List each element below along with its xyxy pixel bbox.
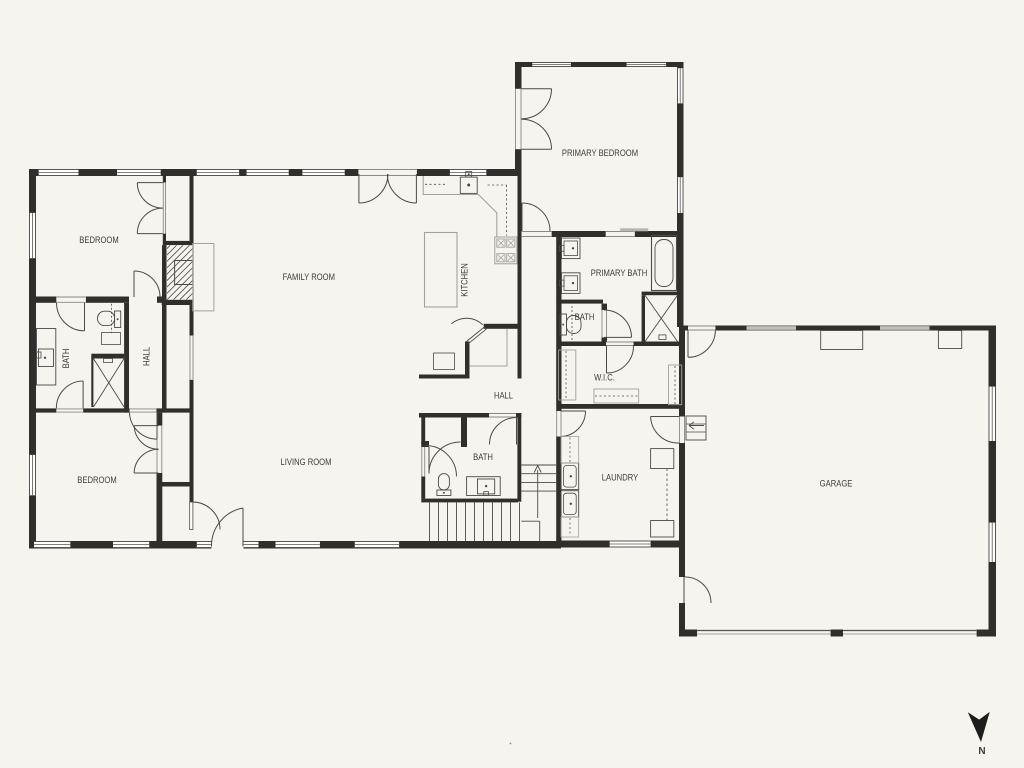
svg-text:LIVING ROOM: LIVING ROOM bbox=[281, 456, 332, 467]
svg-text:PRIMARY BATH: PRIMARY BATH bbox=[591, 268, 647, 279]
svg-text:HALL: HALL bbox=[141, 347, 152, 366]
svg-text:BEDROOM: BEDROOM bbox=[79, 234, 119, 245]
svg-text:PRIMARY BEDROOM: PRIMARY BEDROOM bbox=[562, 147, 638, 158]
svg-text:HALL: HALL bbox=[494, 390, 513, 401]
svg-text:KITCHEN: KITCHEN bbox=[459, 263, 470, 297]
svg-text:LAUNDRY: LAUNDRY bbox=[602, 472, 639, 483]
svg-text:GARAGE: GARAGE bbox=[820, 478, 853, 489]
svg-text:BATH: BATH bbox=[473, 451, 493, 462]
svg-text:BATH: BATH bbox=[575, 311, 595, 322]
svg-text:BATH: BATH bbox=[60, 349, 71, 369]
svg-text:BEDROOM: BEDROOM bbox=[77, 474, 117, 485]
svg-text:N: N bbox=[978, 746, 985, 757]
svg-text:W.I.C.: W.I.C. bbox=[594, 372, 615, 383]
svg-text:FAMILY ROOM: FAMILY ROOM bbox=[283, 271, 335, 282]
